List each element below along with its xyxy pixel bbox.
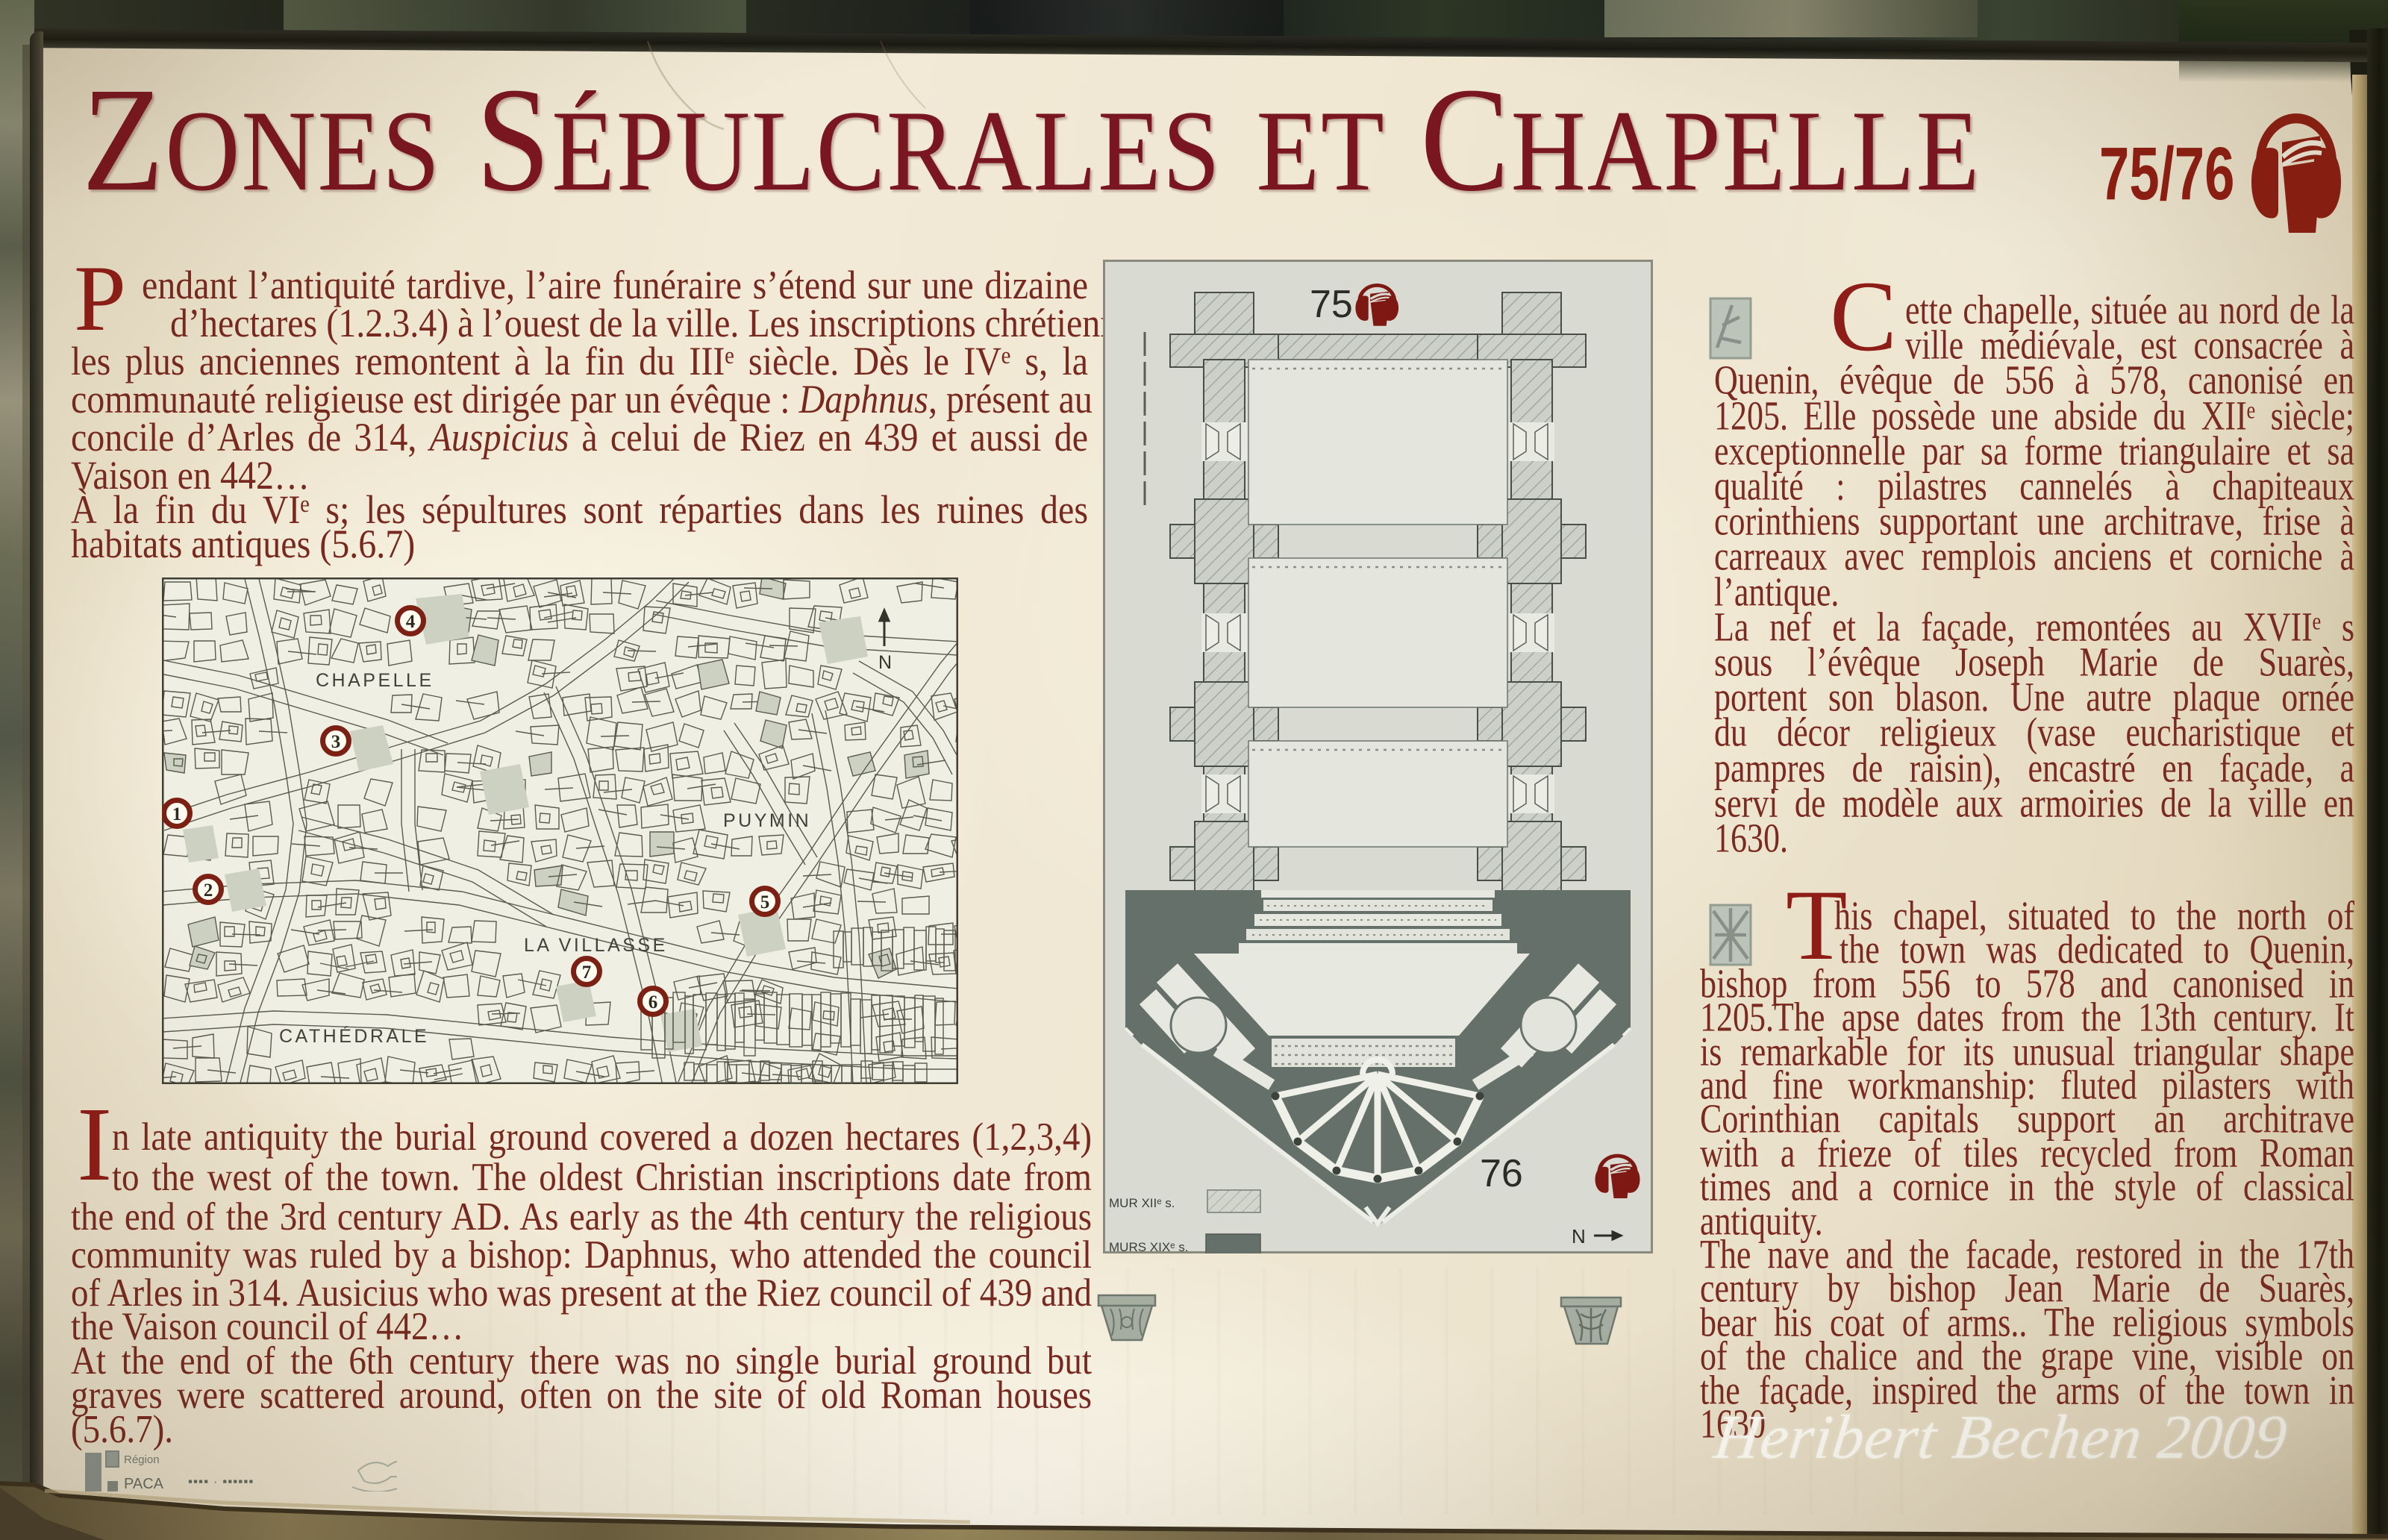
svg-text:N: N: [878, 652, 892, 673]
svg-text:MUR XIIᵉ s.: MUR XIIᵉ s.: [1109, 1196, 1175, 1210]
svg-text:▪▪▪▪ · ▪▪▪▪▪▪: ▪▪▪▪ · ▪▪▪▪▪▪: [188, 1474, 254, 1489]
svg-text:6: 6: [648, 992, 658, 1012]
svg-text:PUYMIN: PUYMIN: [723, 810, 811, 831]
svg-text:MURS XIXᵉ s.: MURS XIXᵉ s.: [1109, 1240, 1188, 1253]
svg-text:5: 5: [760, 892, 770, 913]
svg-text:Région: Région: [124, 1453, 160, 1466]
svg-text:LA VILLASSE: LA VILLASSE: [524, 935, 668, 956]
svg-text:3: 3: [331, 732, 341, 752]
svg-text:75: 75: [1310, 283, 1353, 326]
svg-text:4: 4: [406, 612, 416, 632]
svg-text:CHAPELLE: CHAPELLE: [316, 670, 434, 691]
svg-text:PACA: PACA: [124, 1476, 164, 1492]
svg-text:76: 76: [1480, 1152, 1523, 1195]
svg-text:CATHÉDRALE: CATHÉDRALE: [279, 1025, 429, 1047]
svg-text:2: 2: [204, 880, 213, 901]
svg-text:7: 7: [582, 962, 592, 983]
svg-text:N: N: [1572, 1225, 1586, 1248]
svg-text:1: 1: [172, 804, 182, 824]
